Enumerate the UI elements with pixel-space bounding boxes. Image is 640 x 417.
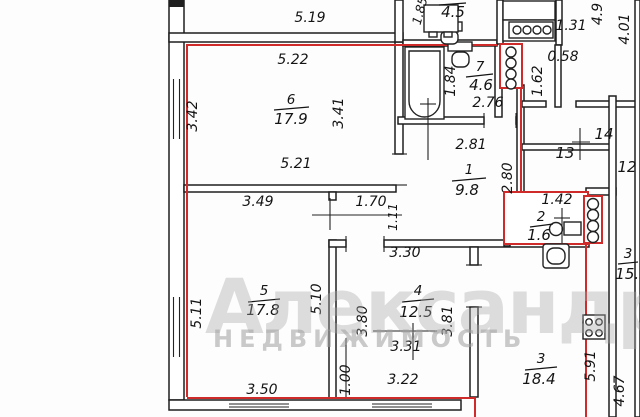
room-area: 9.8 bbox=[455, 181, 479, 199]
dim-label: 5.21 bbox=[280, 156, 311, 172]
dim-label: 3.50 bbox=[246, 382, 277, 398]
kitchen-counter-icon bbox=[503, 1, 555, 41]
dim-label: 1.62 bbox=[530, 65, 546, 96]
dim-label: 1.70 bbox=[355, 194, 386, 210]
dim-label: 4.01 bbox=[617, 13, 633, 44]
dim-label: 3.41 bbox=[331, 97, 347, 128]
room-number: 14 bbox=[594, 125, 613, 143]
watermark: Александр НЕДВИЖИМОСТЬ bbox=[205, 262, 640, 353]
dim-label: 2.81 bbox=[455, 137, 486, 153]
dim-label: 5.91 bbox=[583, 350, 599, 381]
room-number: 2 bbox=[537, 209, 546, 225]
window-icon bbox=[372, 402, 432, 409]
dim-label: 3.42 bbox=[185, 100, 201, 131]
dim-label: 5.19 bbox=[294, 10, 325, 26]
dim-label: 2.80 bbox=[500, 162, 516, 193]
room-number: 12 bbox=[617, 158, 636, 176]
washbasin-icon bbox=[550, 222, 582, 236]
dim-label: 5.22 bbox=[277, 52, 308, 68]
toilet-icon bbox=[448, 42, 472, 67]
dim-label: 4.9 bbox=[590, 3, 606, 25]
room-area: 4.5 bbox=[441, 3, 465, 21]
window-icon bbox=[170, 297, 183, 357]
bathtub-icon bbox=[405, 47, 444, 119]
wall-hatch bbox=[169, 0, 184, 7]
dim-label: 5.11 bbox=[189, 297, 205, 328]
dim-label: 3.22 bbox=[387, 372, 418, 388]
room-area: 4.6 bbox=[469, 76, 493, 94]
room-number: 7 bbox=[476, 59, 485, 75]
dim-label: 0.58 bbox=[547, 49, 578, 65]
room-area: 18.4 bbox=[522, 370, 555, 388]
room-number: 1 bbox=[465, 162, 474, 178]
dim-label: 4.67 bbox=[612, 375, 628, 406]
dim-label: 1.42 bbox=[541, 192, 572, 208]
room-number: 3 bbox=[537, 351, 546, 367]
room-area: 1.6 bbox=[527, 226, 551, 244]
dim-label: 2.76 bbox=[472, 95, 503, 111]
dim-label: 3.49 bbox=[242, 194, 273, 210]
dim-label: 1.00 bbox=[338, 364, 354, 395]
watermark-subtitle: НЕДВИЖИМОСТЬ bbox=[213, 325, 527, 353]
dim-label: 3.30 bbox=[389, 245, 420, 261]
dim-label: 1.31 bbox=[555, 18, 586, 34]
dim-label: 1.11 bbox=[385, 203, 400, 231]
room-number: 3 bbox=[624, 246, 633, 262]
room-area: 17.9 bbox=[274, 110, 307, 128]
floor-plan: 5.19 5.22 3.42 3.41 5.21 3.49 1.70 1.11 … bbox=[0, 0, 640, 417]
window-icon bbox=[170, 79, 183, 139]
floor-plan-image: 5.19 5.22 3.42 3.41 5.21 3.49 1.70 1.11 … bbox=[0, 0, 640, 417]
room-number: 6 bbox=[287, 92, 296, 108]
dim-label: 1.84 bbox=[443, 65, 459, 96]
room-number: 13 bbox=[555, 144, 574, 162]
window-icon bbox=[229, 402, 289, 409]
